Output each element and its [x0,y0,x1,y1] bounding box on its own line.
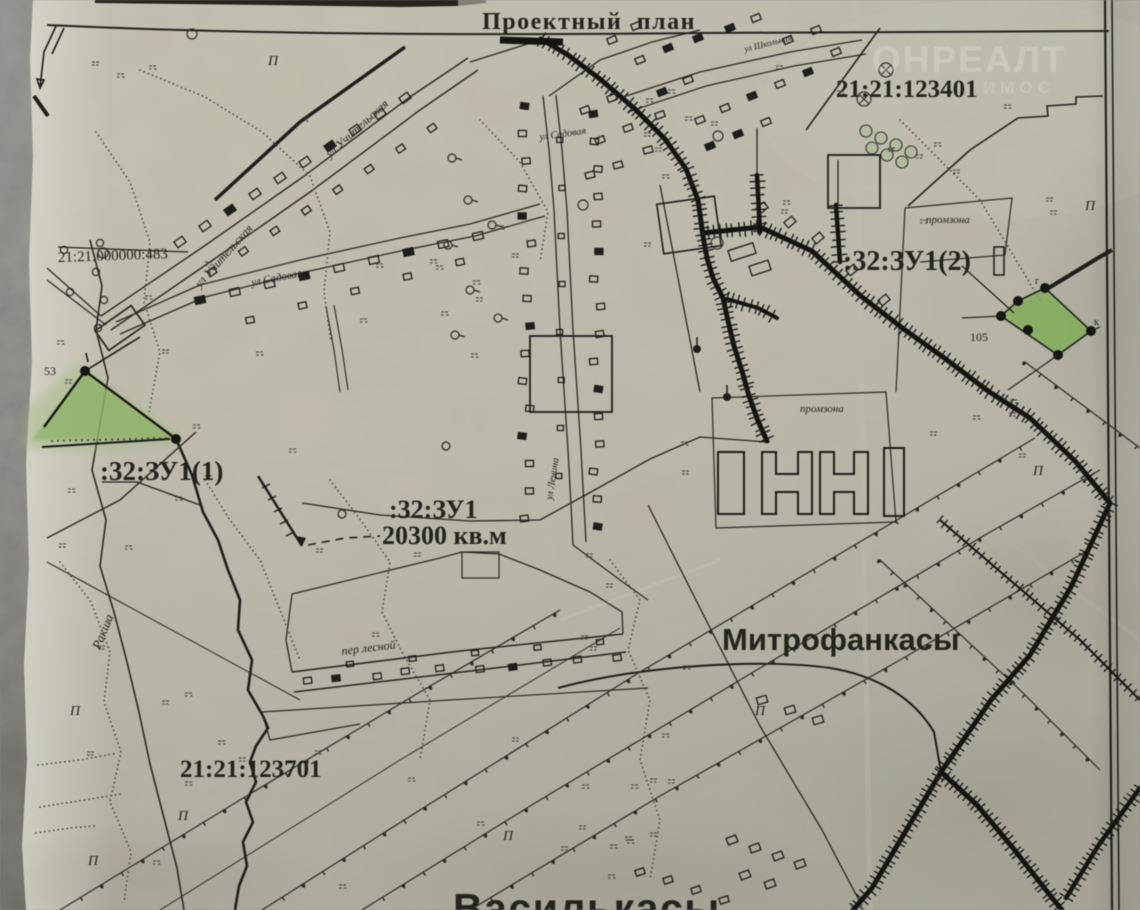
svg-text:П: П [1032,464,1044,479]
svg-text:П: П [69,704,81,719]
svg-text:П: П [267,54,279,69]
svg-text:Митрофанкасы: Митрофанкасы [722,622,960,657]
svg-text::32:ЗУ1(2): :32:ЗУ1(2) [843,246,971,277]
svg-text::32:ЗУ1(1): :32:ЗУ1(1) [100,456,223,486]
svg-text:ИМОС: ИМОС [983,78,1055,97]
svg-text:промзона: промзона [926,214,970,226]
svg-text:20300 кв.м: 20300 кв.м [382,521,507,550]
svg-text:21:21:123401: 21:21:123401 [836,76,978,103]
svg-text:Василькасы: Василькасы [453,885,721,910]
svg-text:г: г [1035,276,1039,287]
svg-text:53: 53 [44,364,56,378]
svg-text:21:21:123701: 21:21:123701 [180,756,322,783]
svg-text:П: П [502,829,514,844]
svg-text:к: к [1094,317,1099,328]
svg-text:П: П [177,809,189,824]
svg-text:П: П [87,854,99,869]
svg-text:П: П [1084,199,1096,214]
svg-text:П: П [754,704,766,719]
svg-text:ОНРЕАЛТ: ОНРЕАЛТ [872,39,1067,80]
svg-text:промзона: промзона [800,403,844,415]
svg-text::32:ЗУ1: :32:ЗУ1 [389,495,477,524]
svg-text:105: 105 [970,330,988,344]
svg-text:Проектный план: Проектный план [482,9,696,35]
